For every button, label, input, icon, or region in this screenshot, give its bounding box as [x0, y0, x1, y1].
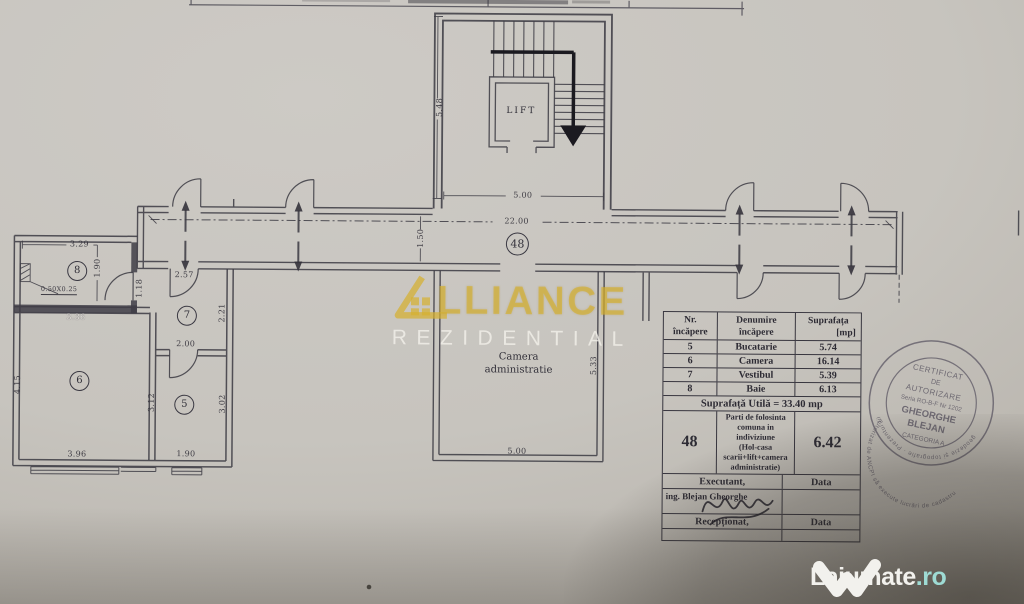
watermark-sub: REZIDENTIAL — [392, 326, 633, 352]
plan-scene: LLIANCE REZIDENTIAL LIFT 5.48 5.00 22.00… — [0, 0, 1024, 604]
floor-plan-photo: LLIANCE REZIDENTIAL LIFT 5.48 5.00 22.00… — [0, 0, 1024, 604]
svg-text:DE: DE — [930, 378, 941, 387]
table-total-row: Suprafață Utilă = 33.40 mp — [663, 396, 860, 412]
watermark-brand: LLIANCE — [437, 278, 628, 324]
dim-r8-side: 1.90 — [93, 259, 102, 278]
th-denumire: Denumire — [736, 314, 777, 326]
room-circle-5: 5 — [174, 395, 194, 415]
windows — [31, 467, 202, 475]
dim-stair-height: 5.48 — [435, 98, 444, 117]
dust-speck — [367, 585, 372, 590]
dim-r8-bottom: 3.36 — [66, 312, 85, 321]
lajumate-heart-icon — [806, 553, 882, 601]
site-logo: Lajumate.ro — [806, 552, 946, 602]
dim-admin-width: 5.00 — [507, 446, 526, 455]
top-strip-smudge — [302, 0, 610, 5]
apartment-walls — [13, 236, 234, 468]
authorization-stamp: autorizat de ANCPI să execute lucrări de… — [856, 327, 1007, 478]
dim-r6-bottom: 3.96 — [67, 449, 86, 458]
dim-corridor-width: 1.50 — [416, 229, 425, 248]
common-area-circle: 48 — [506, 232, 529, 255]
table-common-row: 48 Parti de folosinta comuna in indivizi… — [663, 411, 860, 475]
dim-r7-bottom: 2.00 — [176, 339, 195, 348]
table-row: 6 Camera 16.14 — [664, 354, 861, 369]
dim-corridor-length: 22.00 — [504, 216, 528, 225]
admin-room-label-1: Camera — [499, 351, 539, 362]
dim-r8-top: 3.29 — [70, 239, 89, 248]
dim-r7-top: 2.57 — [175, 270, 194, 279]
table-header: Nr.încăpere Denumireîncăpere Suprafața[m… — [664, 312, 861, 341]
dim-r8-window: 0.50X0.25 — [41, 285, 77, 295]
stair-direction-line — [490, 52, 587, 147]
lift-label: LIFT — [506, 106, 536, 116]
dim-r5-bottom: 1.90 — [176, 449, 195, 458]
vestibule-wall-upper — [131, 242, 137, 272]
th-suprafata: Suprafața — [808, 315, 849, 327]
th-nr: Nr. — [684, 314, 697, 326]
dim-r5-left: 3.12 — [147, 393, 156, 412]
room-circle-8: 8 — [67, 261, 87, 281]
common-desc: Parti de folosinta comuna in indiviziune… — [717, 411, 795, 474]
table-row: 5 Bucatarie 5.74 — [664, 340, 861, 355]
signature-scribble — [688, 477, 798, 532]
dim-r6-left: 4.15 — [13, 375, 22, 394]
vestibule-wall-lower — [131, 300, 137, 313]
dim-admin-height: 5.33 — [589, 356, 598, 375]
site-logo-tld: .ro — [916, 563, 946, 591]
dim-r7-left: 1.18 — [135, 279, 144, 298]
admin-room-label-2: administratie — [485, 364, 553, 375]
room-circle-6: 6 — [69, 371, 89, 391]
room-circle-7: 7 — [177, 306, 197, 326]
table-row: 8 Baie 6.13 — [663, 382, 860, 397]
dim-stair-width: 5.00 — [513, 191, 532, 200]
table-row: 7 Vestibul 5.39 — [663, 368, 860, 383]
dimension-lines — [22, 14, 895, 307]
dim-r7-right: 2.21 — [217, 303, 226, 322]
dim-r5-right: 3.02 — [218, 394, 227, 413]
